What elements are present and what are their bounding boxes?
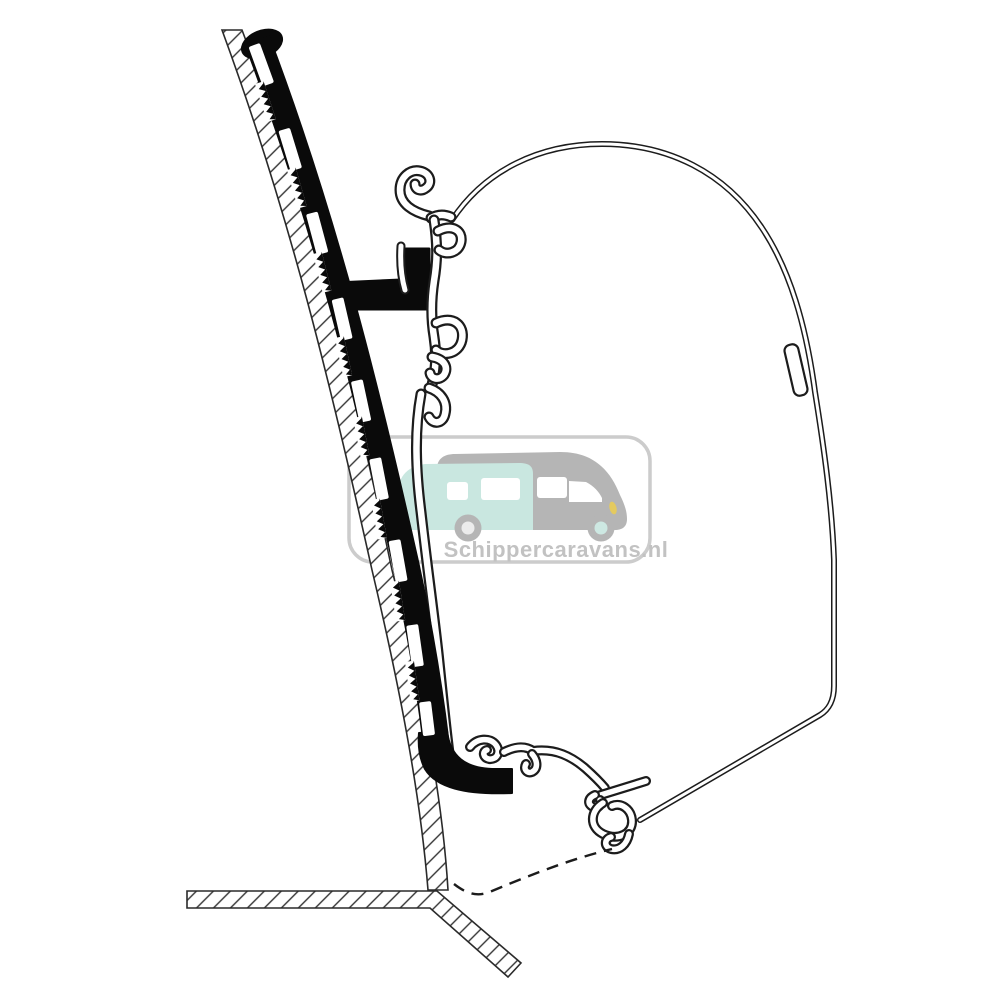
dashed-reference-line xyxy=(454,849,612,894)
motorhome-window-cab xyxy=(537,477,567,498)
motorhome-front-hub xyxy=(595,522,608,535)
motorhome-window-mid xyxy=(481,478,520,500)
roof-cross-section xyxy=(187,891,521,977)
diagram-canvas: Schippercaravans.nl xyxy=(0,0,1000,1000)
adapter-top-arm xyxy=(336,249,429,309)
adapter-profile xyxy=(236,23,512,794)
awning-adapter-diagram: Schippercaravans.nl xyxy=(0,0,1000,1000)
motorhome-window-rear xyxy=(447,482,468,500)
case-side-tab xyxy=(783,343,808,397)
awning-bottom-rail xyxy=(470,740,646,850)
motorhome-icon xyxy=(398,452,627,542)
watermark-text: Schippercaravans.nl xyxy=(444,537,669,562)
motorhome-rear-hub xyxy=(462,522,475,535)
